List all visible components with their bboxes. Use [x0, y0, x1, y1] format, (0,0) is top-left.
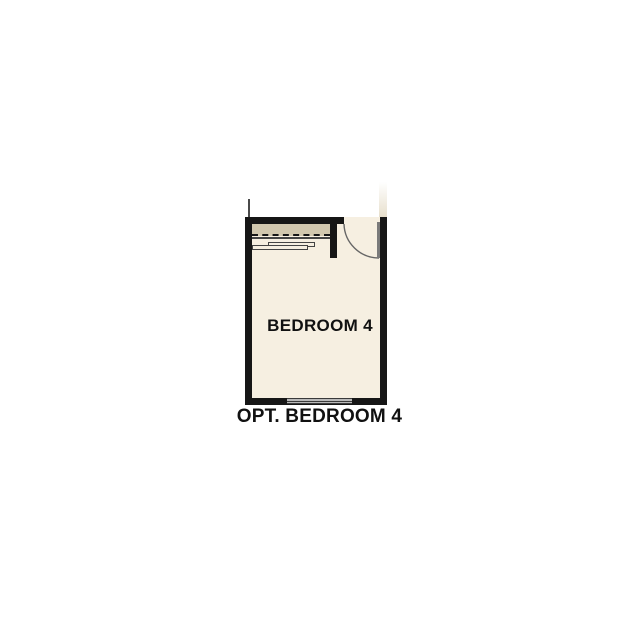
- door-leaf: [377, 222, 380, 258]
- closet-shelf-strip: [252, 224, 330, 236]
- room-label: BEDROOM 4: [256, 317, 384, 334]
- wall-left: [245, 217, 252, 405]
- closet-shelf-edge-lower: [252, 245, 308, 250]
- bedroom4-floorplan: BEDROOM 4: [0, 0, 639, 639]
- adjacent-wall-line: [248, 199, 250, 219]
- adjacent-wall-remnant: [379, 182, 387, 217]
- wall-top: [245, 217, 344, 224]
- closet-front-line: [252, 237, 330, 239]
- floorplan-page: BEDROOM 4 OPT. BEDROOM 4: [0, 0, 639, 639]
- plan-caption: OPT. BEDROOM 4: [0, 406, 639, 428]
- closet-partition-wall: [330, 224, 337, 258]
- window-symbol: [287, 398, 352, 404]
